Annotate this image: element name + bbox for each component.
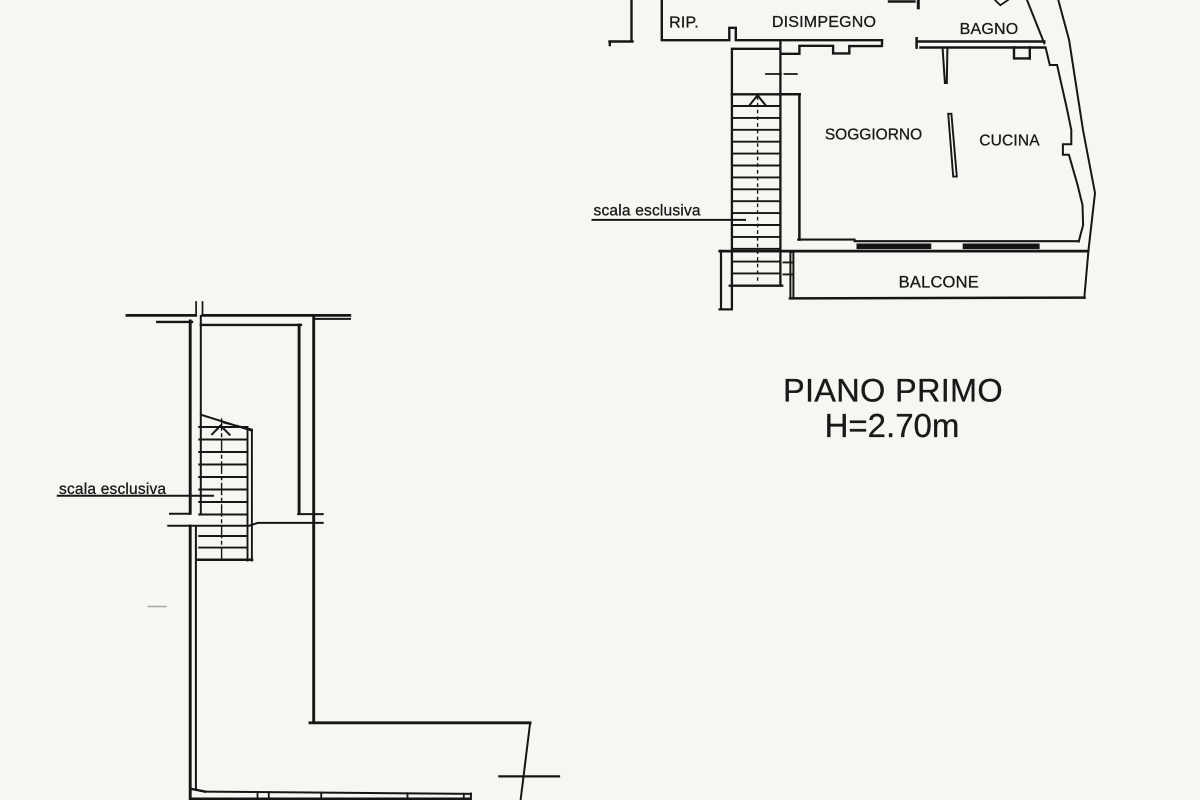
svg-text:scala esclusiva: scala esclusiva	[594, 202, 701, 219]
svg-text:DISIMPEGNO: DISIMPEGNO	[772, 14, 876, 31]
svg-text:BAGNO: BAGNO	[960, 21, 1019, 38]
svg-text:PIANO PRIMO: PIANO PRIMO	[783, 373, 1003, 409]
svg-text:scala esclusiva: scala esclusiva	[59, 481, 166, 498]
svg-text:SOGGIORNO: SOGGIORNO	[825, 127, 922, 144]
svg-text:RIP.: RIP.	[669, 15, 699, 32]
svg-text:H=2.70m: H=2.70m	[825, 407, 960, 444]
svg-text:BALCONE: BALCONE	[899, 274, 979, 292]
svg-text:CUCINA: CUCINA	[979, 133, 1040, 150]
